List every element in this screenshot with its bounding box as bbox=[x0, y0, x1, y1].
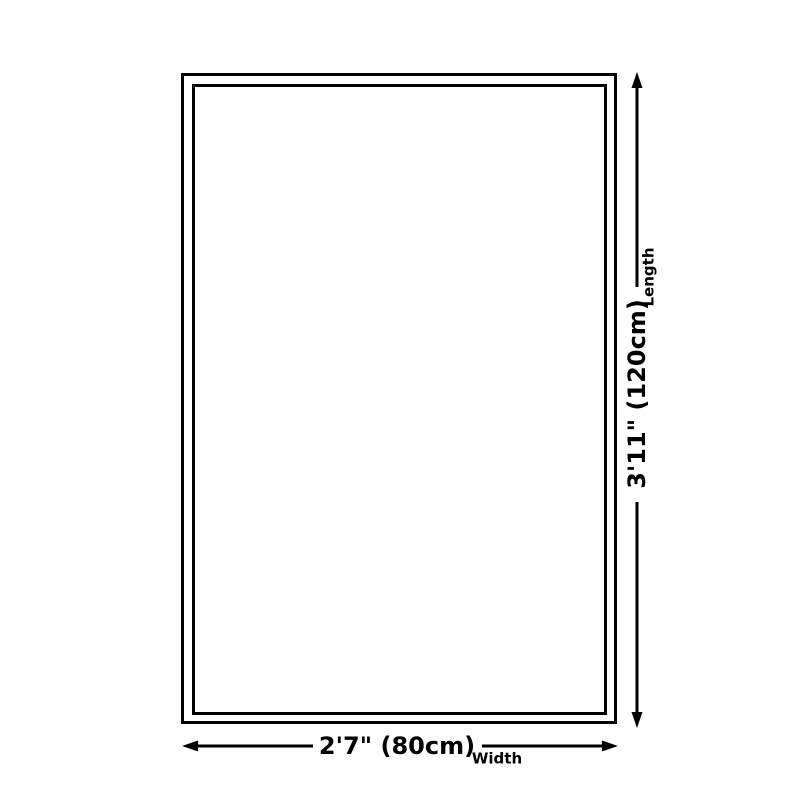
length-dimension-label: 3'11" (120cm) bbox=[625, 299, 649, 489]
arrowhead-down bbox=[632, 712, 643, 728]
width-dimension-label: 2'7" (80cm) bbox=[319, 734, 475, 758]
arrowhead-up bbox=[632, 72, 643, 88]
width-axis-label: Width bbox=[472, 752, 522, 767]
length-axis-label: Length bbox=[642, 248, 657, 307]
arrowhead-left bbox=[182, 741, 198, 752]
dimension-diagram: 3'11" (120cm) Length 2'7" (80cm) Width bbox=[0, 0, 800, 800]
dimension-arrows bbox=[0, 0, 800, 800]
arrowhead-right bbox=[602, 741, 618, 752]
